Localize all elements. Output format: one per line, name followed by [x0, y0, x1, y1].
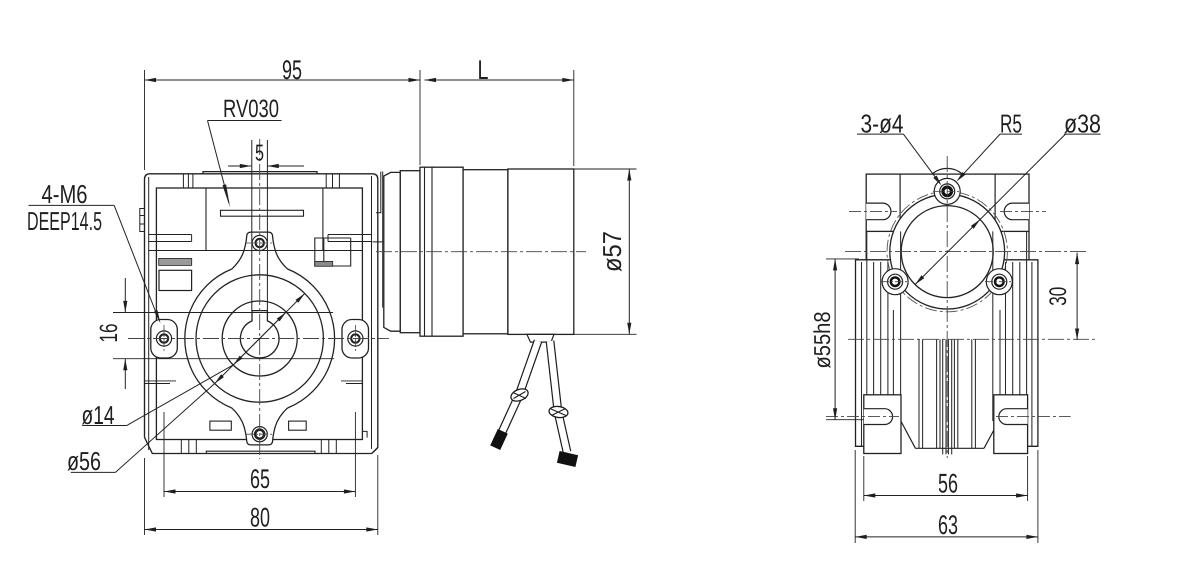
- svg-text:63: 63: [938, 510, 958, 540]
- svg-text:16: 16: [95, 324, 123, 343]
- svg-text:30: 30: [1045, 287, 1072, 306]
- svg-text:ø56: ø56: [67, 446, 101, 476]
- svg-text:65: 65: [250, 464, 270, 494]
- svg-text:4-M6: 4-M6: [42, 179, 88, 209]
- svg-text:RV030: RV030: [223, 95, 279, 123]
- svg-text:80: 80: [250, 503, 270, 533]
- svg-text:ø55h8: ø55h8: [809, 312, 835, 369]
- svg-text:56: 56: [938, 469, 958, 499]
- svg-text:L: L: [478, 55, 489, 85]
- svg-text:5: 5: [255, 140, 264, 166]
- svg-text:DEEP14.5: DEEP14.5: [27, 206, 102, 236]
- svg-text:ø57: ø57: [597, 231, 627, 272]
- svg-text:95: 95: [282, 55, 302, 85]
